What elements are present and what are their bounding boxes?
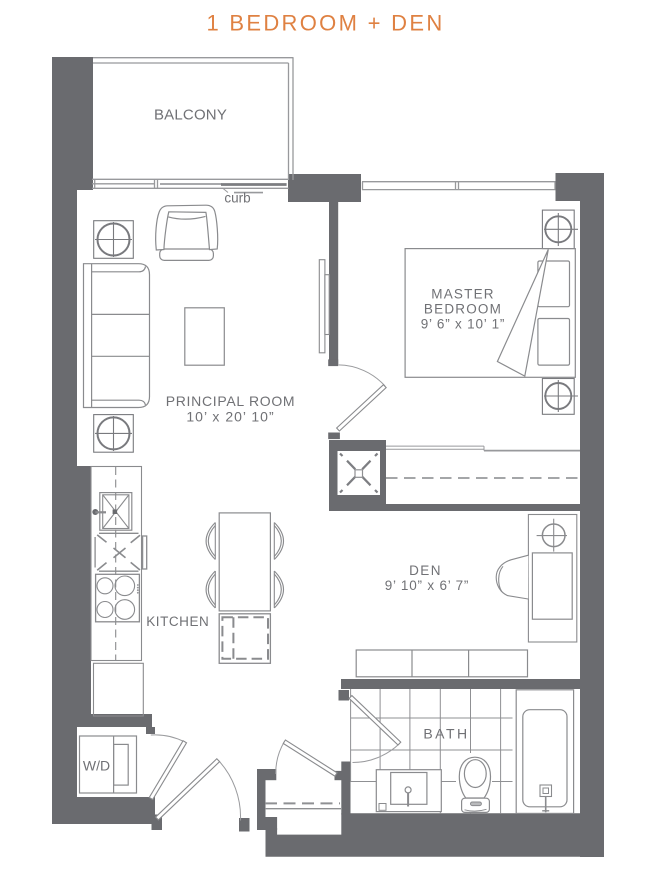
svg-text:MASTER: MASTER — [431, 287, 494, 302]
svg-text:curb: curb — [224, 191, 250, 206]
svg-text:1 BEDROOM + DEN: 1 BEDROOM + DEN — [206, 11, 444, 36]
svg-text:9’ 6” x 10’ 1”: 9’ 6” x 10’ 1” — [421, 317, 505, 332]
svg-text:PRINCIPAL ROOM: PRINCIPAL ROOM — [166, 393, 296, 409]
svg-text:BALCONY: BALCONY — [154, 107, 227, 124]
svg-text:10’ x 20’ 10”: 10’ x 20’ 10” — [186, 409, 274, 425]
svg-text:BATH: BATH — [423, 726, 469, 742]
svg-text:BEDROOM: BEDROOM — [424, 302, 502, 317]
svg-text:DEN: DEN — [409, 563, 442, 578]
svg-text:W/D: W/D — [83, 758, 110, 774]
svg-text:9’ 10” x 6’ 7”: 9’ 10” x 6’ 7” — [385, 578, 469, 593]
svg-text:KITCHEN: KITCHEN — [146, 614, 209, 629]
